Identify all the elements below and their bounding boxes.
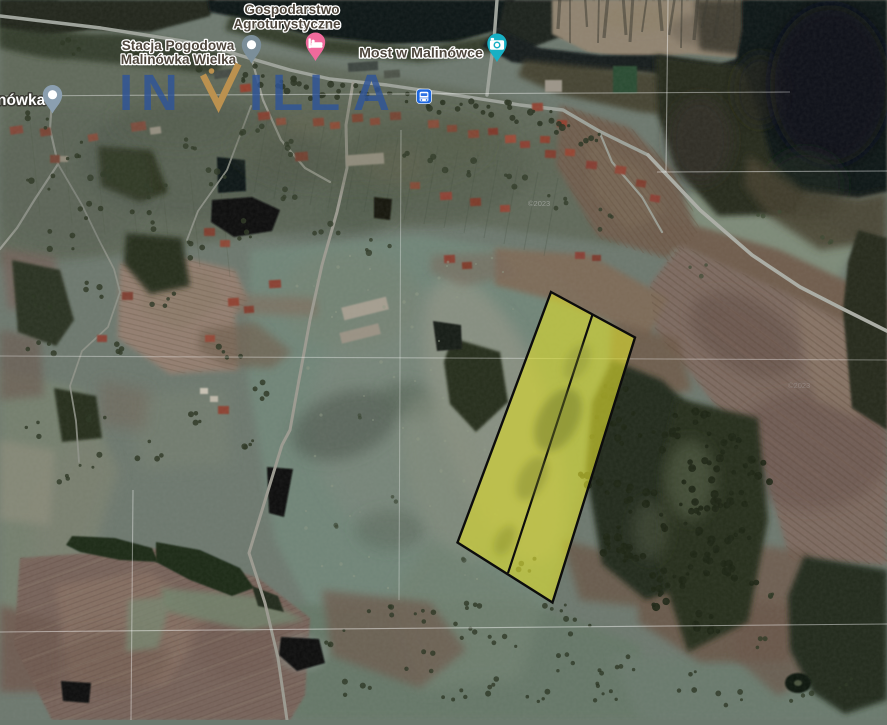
svg-text:Agroturystyczne: Agroturystyczne [233,17,341,32]
svg-text:Gospodarstwo: Gospodarstwo [244,2,339,17]
svg-text:©2023: ©2023 [528,199,550,208]
svg-text:©2023: ©2023 [788,381,810,390]
svg-text:Malinówka Wielka: Malinówka Wielka [121,52,237,67]
svg-text:Most w Malinówce: Most w Malinówce [359,46,483,62]
svg-text:Stacja Pogodowa: Stacja Pogodowa [122,38,235,53]
svg-text:I: I [119,64,133,121]
svg-text:L: L [272,64,303,121]
svg-text:I: I [249,64,263,121]
svg-text:A: A [353,64,390,121]
svg-text:nówka: nówka [0,92,46,109]
svg-text:N: N [141,64,178,121]
svg-text:L: L [309,64,340,121]
